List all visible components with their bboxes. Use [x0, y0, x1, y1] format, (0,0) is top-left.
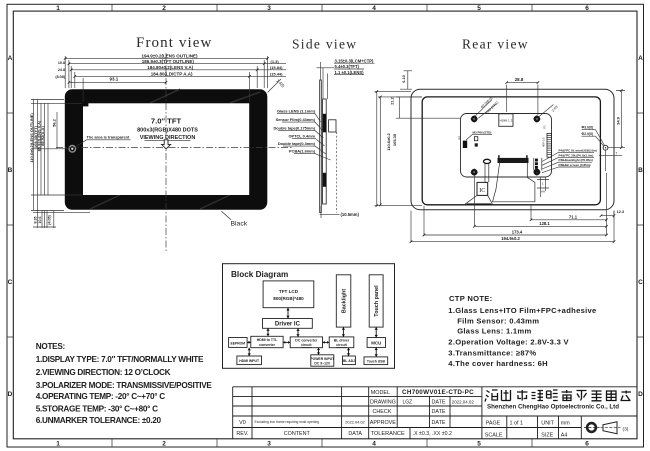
svg-text:2.Operation Voltage: 2.8V-3.3: 2.Operation Voltage: 2.8V-3.3 V — [448, 338, 569, 347]
svg-text:Block Diagram: Block Diagram — [231, 270, 288, 279]
svg-text:(10.5mm): (10.5mm) — [341, 212, 360, 217]
svg-text:7.0″ TFT: 7.0″ TFT — [151, 116, 182, 125]
svg-text:800x3(RGB)X480 DOTS: 800x3(RGB)X480 DOTS — [137, 127, 198, 133]
svg-text:BL ADJ: BL ADJ — [343, 359, 355, 363]
svg-text:Φ2.0(X): Φ2.0(X) — [582, 132, 594, 136]
svg-text:Rear view: Rear view — [462, 37, 529, 52]
svg-text:5.4±0.3(TFT): 5.4±0.3(TFT) — [335, 64, 360, 69]
svg-text:10.8: 10.8 — [58, 61, 65, 65]
svg-text:4.OPERATING TEMP: -20° C~+70°: 4.OPERATING TEMP: -20° C~+70° C — [36, 392, 165, 401]
svg-text:A: A — [638, 55, 643, 62]
svg-text:CONTENT: CONTENT — [284, 431, 311, 437]
svg-text:Black: Black — [231, 221, 248, 228]
svg-text:3.POLARIZER MODE: TRANSMISSIVE: 3.POLARIZER MODE: TRANSMISSIVE/POSITIVE — [36, 381, 213, 390]
svg-text:CHECK: CHECK — [373, 409, 392, 415]
svg-text:P4&FPC 30L(P0.5)(1.0m): P4&FPC 30L(P0.5)(1.0m) — [559, 153, 594, 157]
svg-text:2022.04.02: 2022.04.02 — [345, 420, 364, 425]
svg-text:APPROVE: APPROVE — [370, 420, 396, 426]
svg-text:93.1: 93.1 — [110, 77, 119, 82]
svg-text:C: C — [8, 279, 13, 286]
svg-text:.X ±0.3, .XX ±0.2: .X ±0.3, .XX ±0.2 — [413, 431, 452, 437]
svg-text:Touch panel: Touch panel — [374, 285, 380, 317]
svg-text:2.VIEWING DIRECTION: 12 O’CLOC: 2.VIEWING DIRECTION: 12 O’CLOCK — [36, 368, 171, 377]
svg-text:P4&FPC 8L mini(USB2.0m): P4&FPC 8L mini(USB2.0m) — [559, 148, 597, 152]
svg-text:DATE: DATE — [432, 420, 446, 426]
svg-text:(15.84): (15.84) — [270, 65, 283, 70]
svg-text:194.9±0.2(LENS OUTLINE): 194.9±0.2(LENS OUTLINE) — [142, 53, 198, 58]
svg-text:10.6: 10.6 — [38, 217, 42, 224]
svg-text:LGZ: LGZ — [403, 400, 413, 406]
svg-text:800(RGB)*480: 800(RGB)*480 — [273, 296, 304, 301]
svg-text:P3B&backlight (P0.85m): P3B&backlight (P0.85m) — [559, 158, 594, 162]
svg-text:12.3: 12.3 — [617, 210, 624, 214]
svg-text:85.92(A.A): 85.92(A.A) — [40, 126, 45, 146]
svg-text:Excluding iron frame requiring: Excluding iron frame requiring mold open… — [255, 420, 320, 424]
svg-text:Glass LENS (1.1mm): Glass LENS (1.1mm) — [277, 109, 316, 114]
svg-text:21.2: 21.2 — [390, 97, 394, 104]
svg-text:1 of 1: 1 of 1 — [510, 421, 524, 427]
svg-text:173.4: 173.4 — [512, 230, 523, 235]
svg-text:2: 2 — [162, 441, 166, 448]
svg-text:4: 4 — [372, 5, 376, 12]
svg-text:HDMI to TTL: HDMI to TTL — [257, 338, 278, 342]
svg-text:B: B — [638, 167, 643, 174]
svg-text:PCBA(1.6mm): PCBA(1.6mm) — [289, 149, 316, 154]
svg-text:CTP NOTE:: CTP NOTE: — [449, 294, 492, 303]
svg-text:D: D — [8, 391, 13, 398]
svg-text:3: 3 — [267, 5, 271, 12]
svg-text:1: 1 — [56, 5, 60, 12]
svg-text:6: 6 — [585, 5, 589, 12]
svg-text:194.9±0.2: 194.9±0.2 — [501, 236, 520, 241]
svg-text:Glass Lens: 1.1mm: Glass Lens: 1.1mm — [457, 327, 531, 336]
svg-text:1.DISPLAY TYPE: 7.0″ TFT/NORM: 1.DISPLAY TYPE: 7.0″ TFT/NORMALLY WHITE — [36, 355, 204, 364]
svg-text:AA: AA — [541, 190, 545, 194]
svg-text:34.9: 34.9 — [616, 116, 621, 125]
svg-text:105.35: 105.35 — [392, 133, 397, 146]
svg-text:4.6: 4.6 — [457, 136, 461, 140]
svg-text:P1: P1 — [543, 125, 547, 129]
svg-text:NOTES:: NOTES: — [36, 342, 65, 351]
svg-text:3.Transmittance: ≥87%: 3.Transmittance: ≥87% — [448, 348, 536, 357]
svg-text:EEPROM: EEPROM — [230, 341, 245, 345]
svg-text:HDMI 1.3: HDMI 1.3 — [500, 119, 513, 123]
svg-text:A: A — [8, 55, 13, 62]
svg-text:6: 6 — [585, 441, 589, 448]
svg-text:PAGE: PAGE — [486, 421, 501, 427]
svg-text:(1.3): (1.3) — [271, 59, 280, 64]
svg-text:5: 5 — [477, 5, 481, 12]
svg-text:DATE: DATE — [432, 409, 446, 415]
svg-text:Sensor Film(0.43mm): Sensor Film(0.43mm) — [276, 117, 316, 122]
svg-text:4.The cover hardness: 6H: 4.The cover hardness: 6H — [448, 359, 548, 368]
svg-text:184.80(LD/CTP A.A): 184.80(LD/CTP A.A) — [151, 71, 193, 76]
svg-text:A4: A4 — [561, 432, 568, 438]
svg-text:3: 3 — [267, 441, 271, 448]
svg-text:71.1: 71.1 — [569, 214, 578, 219]
svg-text:(15.44): (15.44) — [270, 71, 283, 76]
svg-text:C: C — [638, 279, 643, 286]
svg-text:2022.04.02: 2022.04.02 — [452, 399, 475, 404]
svg-text:CH700WV01E-CTD-PC: CH700WV01E-CTD-PC — [402, 389, 474, 396]
svg-text:Side view: Side view — [292, 37, 357, 52]
svg-text:Φ3.0(X): Φ3.0(X) — [582, 126, 594, 130]
svg-text:DATA: DATA — [348, 431, 362, 437]
svg-text:128.1: 128.1 — [539, 221, 550, 226]
svg-text:DRAWING: DRAWING — [370, 400, 396, 406]
svg-text:110.6±0.2: 110.6±0.2 — [386, 132, 391, 150]
svg-text:Touch USB: Touch USB — [367, 360, 386, 364]
svg-text:P3B&B screen (0.85m): P3B&B screen (0.85m) — [559, 163, 591, 167]
svg-text:1: 1 — [56, 441, 60, 448]
svg-text:M3 PIN (STD): M3 PIN (STD) — [473, 130, 492, 134]
svg-text:DC converter: DC converter — [295, 339, 318, 343]
svg-text:IC: IC — [479, 188, 485, 194]
svg-text:Shenzhen ChengHao Optoelectron: Shenzhen ChengHao Optoelectronic Co., Lt… — [487, 403, 619, 410]
svg-text:4: 4 — [372, 441, 376, 448]
svg-text:circuit: circuit — [301, 343, 312, 347]
svg-text:1.1 ±0.1(LENS): 1.1 ±0.1(LENS) — [335, 70, 365, 75]
svg-text:Driver IC: Driver IC — [275, 322, 301, 328]
svg-text:Front view: Front view — [136, 35, 212, 51]
svg-text:184.80±0.2(LENS V.A): 184.80±0.2(LENS V.A) — [147, 65, 193, 70]
svg-text:MCU: MCU — [371, 341, 381, 346]
svg-text:1.Glass Lens+ITO Film+FPC+adhe: 1.Glass Lens+ITO Film+FPC+adhesive — [448, 306, 596, 315]
svg-text:186.9±0.3(TFT OUTLINE): 186.9±0.3(TFT OUTLINE) — [142, 59, 195, 64]
svg-text:(4.05): (4.05) — [48, 215, 52, 225]
svg-text:BL driver: BL driver — [334, 339, 350, 343]
svg-text:Double tape(0.3mm): Double tape(0.3mm) — [278, 141, 316, 146]
svg-text:HDMI INPUT: HDMI INPUT — [239, 359, 260, 363]
svg-text:Double tape(0.175mm): Double tape(0.175mm) — [273, 126, 315, 131]
svg-text:V0: V0 — [239, 420, 246, 426]
svg-text:SCALE: SCALE — [485, 432, 503, 438]
svg-text:56.2: 56.2 — [52, 118, 57, 127]
svg-text:5: 5 — [477, 441, 481, 448]
svg-text:circuit: circuit — [336, 343, 347, 347]
svg-text:(8.08): (8.08) — [55, 75, 65, 79]
svg-text:24.8: 24.8 — [58, 68, 65, 72]
svg-text:DATE: DATE — [432, 400, 446, 406]
svg-text:TFT LCD: TFT LCD — [279, 289, 299, 294]
svg-text:7: 7 — [616, 151, 618, 155]
svg-text:UNIT: UNIT — [541, 421, 554, 427]
svg-text:2: 2 — [162, 5, 166, 12]
svg-text:MODEL: MODEL — [371, 390, 390, 396]
svg-text:28.8: 28.8 — [515, 77, 524, 82]
svg-text:DC 9~12V: DC 9~12V — [314, 361, 330, 365]
svg-text:B: B — [8, 167, 13, 174]
svg-text:40P 0.5: 40P 0.5 — [542, 137, 546, 147]
svg-text:Film Sensor: 0.43mm: Film Sensor: 0.43mm — [457, 317, 539, 326]
svg-text:mm: mm — [561, 421, 570, 427]
svg-text:converter: converter — [259, 343, 276, 347]
svg-text:Backlight: Backlight — [342, 289, 348, 313]
svg-text:POWER INPUT: POWER INPUT — [310, 357, 335, 361]
svg-text:REV.: REV. — [236, 431, 248, 437]
svg-text:The area is transparent: The area is transparent — [87, 135, 131, 140]
svg-text:5.STORAGE TEMP: -30° C~+80° C: 5.STORAGE TEMP: -30° C~+80° C — [36, 404, 158, 413]
svg-text:3.15±0.3(LCM+CTP): 3.15±0.3(LCM+CTP) — [335, 58, 375, 63]
svg-text:(3): (3) — [623, 426, 629, 432]
svg-text:D: D — [638, 391, 643, 398]
svg-text:OPTCL 0.4mm: OPTCL 0.4mm — [288, 133, 315, 138]
svg-text:TOLERANCE: TOLERANCE — [371, 431, 405, 437]
svg-text:6.UNMARKER TOLERANCE: ±0.20: 6.UNMARKER TOLERANCE: ±0.20 — [36, 416, 162, 425]
svg-text:SIZE: SIZE — [541, 432, 553, 438]
svg-text:6.10: 6.10 — [402, 75, 406, 82]
